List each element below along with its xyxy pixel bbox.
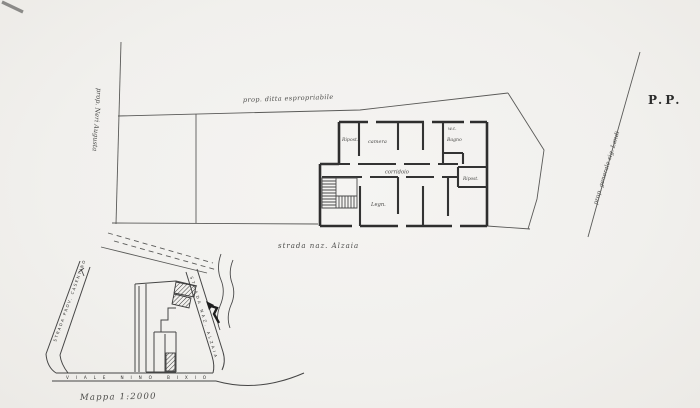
street-left-outer-line: [46, 261, 80, 354]
owner-right-label: prop. generale sig. Landi: [592, 130, 621, 205]
scanned-plan-page: Ripost. camera w.c. Bagno corridoio Ripo…: [0, 0, 700, 408]
flow-arrow-head: [206, 301, 214, 310]
street-left: STRADA PROV. CASENTINO: [46, 260, 90, 373]
plot-boundary-left: [116, 42, 121, 224]
room-label-bath: Bagno: [446, 137, 462, 143]
architectural-drawing: Ripost. camera w.c. Bagno corridoio Ripo…: [0, 0, 700, 408]
dashed-road: [101, 233, 217, 273]
street-bottom-name: VIALE NINO BIXIO: [66, 375, 207, 380]
owner-left-label: prop. Neri Augusta: [91, 88, 103, 152]
dashed-road-solid-edge: [101, 247, 207, 273]
dashed-road-line-2: [114, 241, 217, 270]
plot-boundaries: [79, 42, 640, 276]
room-label-storage-right: Ripost.: [462, 177, 479, 182]
owner-top-label: prop. ditta espropriabile: [243, 93, 334, 104]
stair-treads-left-flight: [322, 181, 336, 205]
street-name-label: strada naz. Alzaia: [278, 242, 359, 250]
room-label-wc: w.c.: [448, 127, 457, 132]
river-bank-left: [218, 254, 224, 330]
street-bottom-curve-right: [216, 373, 304, 386]
block-left-strip: [135, 284, 146, 372]
plot-boundary-right: [508, 93, 544, 229]
room-label-camera: camera: [368, 139, 387, 145]
staircase: [322, 178, 357, 208]
river-bank-right: [228, 260, 234, 328]
map-caption: Mappa 1:2000: [79, 392, 157, 403]
building-floor-plan: Ripost. camera w.c. Bagno corridoio Ripo…: [320, 122, 487, 226]
street-front-line-right: [487, 226, 530, 229]
sheet-code-label: P.P.: [648, 93, 682, 107]
block-stepped-edge: [154, 308, 176, 332]
wc-bath-divider: [443, 153, 463, 164]
room-label-wood-store: Legn.: [370, 202, 386, 208]
room-label-storage-upper: Ripost.: [341, 137, 359, 143]
street-left-corner-inner: [60, 355, 68, 373]
room-label-corridor: corridoio: [385, 170, 409, 176]
dashed-road-line-1: [108, 233, 213, 263]
street-front-line-left: [112, 223, 318, 224]
site-map: STRADA PROV. CASENTINO VIALE NINO BIXIO …: [46, 254, 304, 403]
map-building-block: [135, 281, 197, 372]
river: [206, 254, 234, 330]
scan-fold-mark: [2, 2, 23, 12]
street-bottom: VIALE NINO BIXIO: [52, 373, 304, 386]
room-partitions: [359, 122, 487, 226]
stair-treads-bottom-flight: [339, 196, 354, 208]
street-left-corner-outer: [46, 354, 56, 373]
block-hatched-cell-c: [166, 353, 175, 371]
street-left-name: STRADA PROV. CASENTINO: [52, 260, 86, 343]
